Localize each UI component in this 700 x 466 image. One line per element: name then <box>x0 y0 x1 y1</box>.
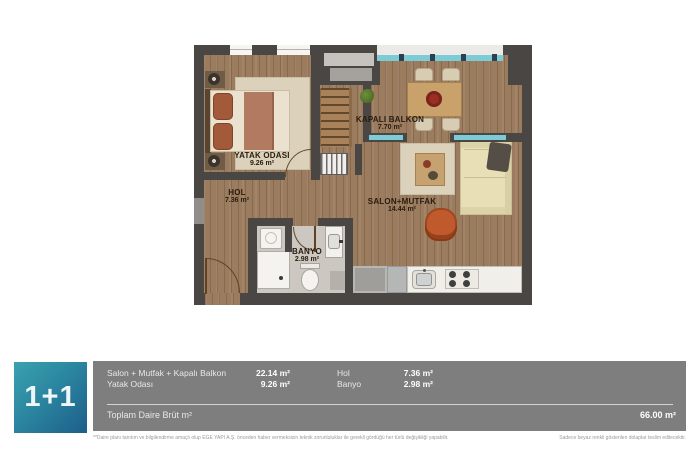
area-table-panel: Salon + Mutfak + Kapalı Balkon 22.14 m² … <box>93 361 686 431</box>
chair <box>442 118 460 131</box>
coffee-table <box>415 153 445 186</box>
area-row-value: 2.98 m² <box>373 379 433 389</box>
room-name: KAPALI BALKON <box>356 115 424 124</box>
area-row-value: 7.36 m² <box>373 368 433 378</box>
counter-steel <box>387 266 407 293</box>
unit-type-label: 1+1 <box>24 381 76 414</box>
balcony-window-sill <box>377 45 503 55</box>
bed-blanket <box>244 92 274 150</box>
area-row-value: 22.14 m² <box>230 368 290 378</box>
chair <box>442 68 460 81</box>
cabinet-bottom <box>330 68 372 81</box>
partition-glass <box>369 135 403 140</box>
chair <box>415 68 433 81</box>
wall <box>203 172 285 180</box>
lamp <box>208 155 220 167</box>
shower <box>257 251 290 289</box>
sofa-throw <box>486 142 512 173</box>
room-label-banyo: BANYO 2.98 m² <box>292 247 322 264</box>
closet <box>318 88 352 147</box>
area-row-label: Banyo <box>337 379 361 389</box>
area-row-label: Yatak Odası <box>107 379 153 389</box>
room-area: 9.26 m² <box>234 160 289 168</box>
glazing-post <box>492 54 497 61</box>
glazing-post <box>399 54 404 61</box>
burner <box>449 271 456 278</box>
wall <box>285 226 292 252</box>
wall <box>345 218 353 293</box>
room-area: 7.70 m² <box>356 124 424 132</box>
footnote-delivery: Sadece beyaz renkli gösterilen dolaplar … <box>559 435 686 441</box>
fridge <box>353 266 387 293</box>
room-name: HOL <box>225 188 249 197</box>
bed-pillow <box>213 123 233 150</box>
area-row-label: Hol <box>337 368 350 378</box>
wall <box>252 45 277 55</box>
floor-plan: YATAK ODASI 9.26 m² KAPALI BALKON 7.70 m… <box>194 45 532 307</box>
room-name: BANYO <box>292 247 322 256</box>
sink-basin <box>416 273 432 286</box>
burner <box>449 280 456 287</box>
washing-machine-door <box>265 232 277 244</box>
door-leaf <box>355 144 362 175</box>
bedroom-window <box>277 45 310 55</box>
wall <box>240 293 532 305</box>
partition-glass <box>454 135 506 140</box>
bedroom-window <box>230 45 252 55</box>
area-row-label: Salon + Mutfak + Kapalı Balkon <box>107 368 226 378</box>
room-label-yatak-odasi: YATAK ODASI 9.26 m² <box>234 151 289 168</box>
glazing-post <box>430 54 435 61</box>
wall-light-segment <box>194 198 204 224</box>
room-label-salon-mutfak: SALON+MUTFAK 14.44 m² <box>368 197 436 214</box>
wall <box>311 45 320 180</box>
bath-cabinet <box>330 271 345 290</box>
burner <box>463 280 470 287</box>
bed-pillow <box>213 93 233 120</box>
burner <box>463 271 470 278</box>
faucet <box>423 269 426 272</box>
table-decor <box>428 171 438 180</box>
balcony-glazing <box>377 55 503 61</box>
toilet <box>301 269 319 291</box>
cabinet-top <box>324 53 374 66</box>
total-value: 66.00 m² <box>640 410 676 420</box>
shower-drain <box>279 276 283 280</box>
room-area: 7.36 m² <box>225 197 249 205</box>
total-label: Toplam Daire Brüt m² <box>107 410 192 420</box>
room-area: 2.98 m² <box>292 256 322 264</box>
plant <box>360 89 374 103</box>
entrance-door-leaf <box>205 258 207 294</box>
area-row-value: 9.26 m² <box>230 379 290 389</box>
unit-type-badge: 1+1 <box>14 362 87 433</box>
lamp <box>208 73 220 85</box>
footnote-disclaimer: **Daire planı tanıtım ve bilgilendirme a… <box>93 435 449 441</box>
radiator-grille <box>320 153 348 175</box>
room-area: 14.44 m² <box>368 206 436 214</box>
room-name: SALON+MUTFAK <box>368 197 436 206</box>
room-label-kapali-balkon: KAPALI BALKON 7.70 m² <box>356 115 424 132</box>
table-decor <box>423 160 431 168</box>
sofa-cushion-line <box>464 177 506 178</box>
floorplan-page: YATAK ODASI 9.26 m² KAPALI BALKON 7.70 m… <box>0 0 700 466</box>
room-label-hol: HOL 7.36 m² <box>225 188 249 205</box>
wall <box>522 45 532 297</box>
glazing-post <box>461 54 466 61</box>
entrance-threshold <box>205 293 240 305</box>
room-name: YATAK ODASI <box>234 151 289 160</box>
panel-divider <box>107 404 673 405</box>
table-centerpiece <box>426 91 442 107</box>
tap <box>339 240 343 243</box>
wall <box>248 218 257 293</box>
